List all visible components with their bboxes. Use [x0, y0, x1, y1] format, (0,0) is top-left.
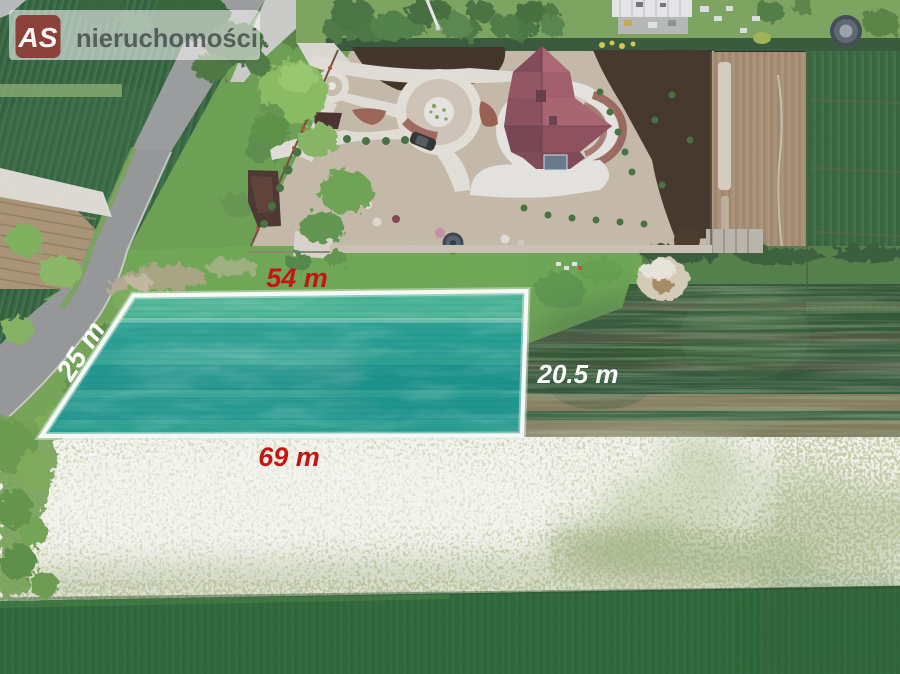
svg-text:nieruchomości: nieruchomości — [76, 23, 258, 53]
svg-text:69 m: 69 m — [258, 442, 320, 472]
svg-text:54 m: 54 m — [266, 263, 328, 293]
svg-text:AS: AS — [18, 22, 58, 53]
svg-text:20.5 m: 20.5 m — [537, 359, 619, 389]
